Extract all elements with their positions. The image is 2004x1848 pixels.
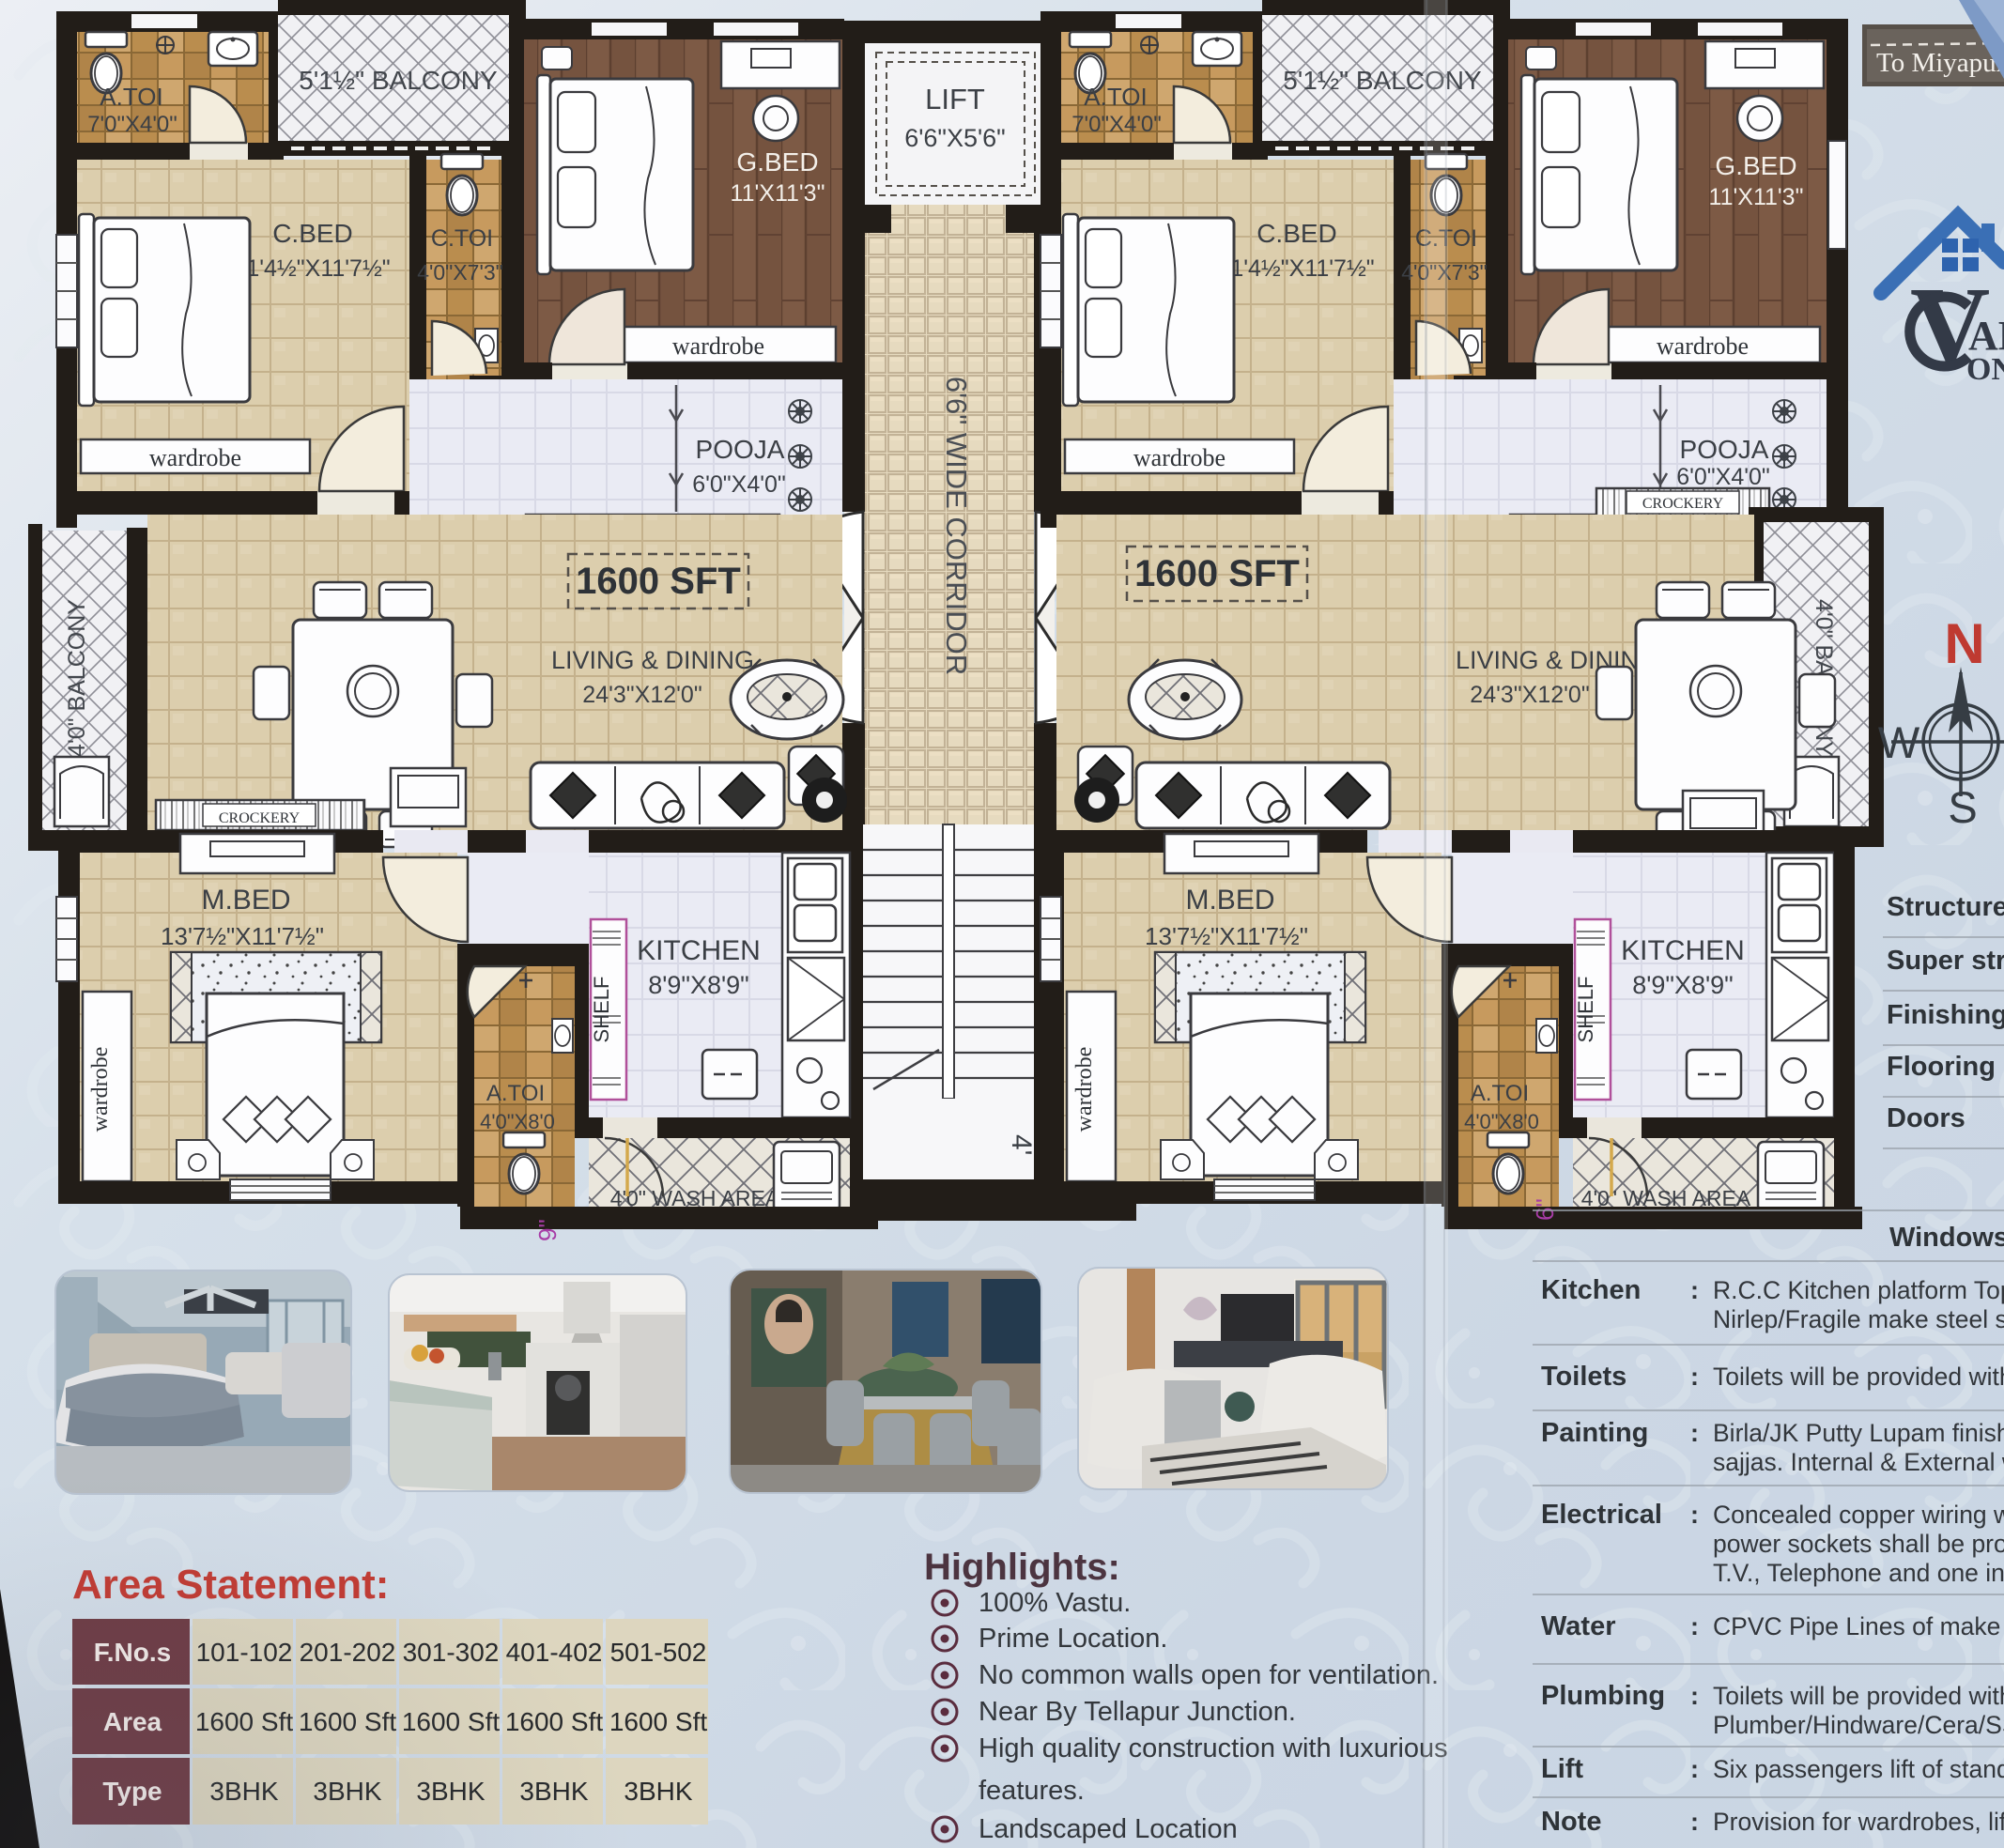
svg-text:CROCKERY: CROCKERY xyxy=(1642,496,1724,512)
svg-text:wardrobe: wardrobe xyxy=(1657,332,1749,360)
svg-text:Birla/JK Putty Lupam finishing: Birla/JK Putty Lupam finishing in dra xyxy=(1713,1419,2004,1447)
svg-text:4'0"X7'3": 4'0"X7'3" xyxy=(417,260,503,285)
svg-text:1600 SFT: 1600 SFT xyxy=(576,561,741,602)
svg-text:Electrical: Electrical xyxy=(1541,1500,1662,1530)
svg-text:SHELF: SHELF xyxy=(590,977,613,1043)
svg-text:SHELF: SHELF xyxy=(1574,977,1597,1043)
svg-text:features.: features. xyxy=(979,1776,1085,1806)
svg-text:11'4½"X11'7½": 11'4½"X11'7½" xyxy=(1219,255,1374,282)
svg-text:POOJA: POOJA xyxy=(696,435,785,464)
svg-text::: : xyxy=(1690,1419,1699,1447)
svg-text:C.BED: C.BED xyxy=(272,219,353,248)
svg-text:A.TOI: A.TOI xyxy=(100,83,162,111)
svg-text:Kitchen: Kitchen xyxy=(1541,1275,1641,1305)
svg-text:4'0"X8'0: 4'0"X8'0 xyxy=(1464,1110,1539,1133)
svg-text::: : xyxy=(1690,1276,1699,1304)
svg-text::: : xyxy=(1690,1755,1699,1783)
svg-text:A.TOI: A.TOI xyxy=(1084,83,1147,111)
svg-text:Highlights:: Highlights: xyxy=(924,1547,1120,1588)
svg-text:Near By Tellapur Junction.: Near By Tellapur Junction. xyxy=(979,1697,1296,1727)
svg-text:Toilets will be provided w: Toilets will be provided with E xyxy=(1713,1682,2004,1710)
svg-text:LIFT: LIFT xyxy=(925,83,985,115)
svg-text:N: N xyxy=(1944,612,1984,675)
svg-text:4'0"X8'0: 4'0"X8'0 xyxy=(480,1110,555,1133)
svg-text:Plumbing: Plumbing xyxy=(1541,1681,1665,1711)
svg-text:Doors: Doors xyxy=(1887,1103,1965,1133)
svg-text:Six passengers lift of standar: Six passengers lift of standard make xyxy=(1713,1755,2004,1783)
svg-text:wardrobe: wardrobe xyxy=(88,1047,113,1132)
svg-text:G.BED: G.BED xyxy=(1715,151,1796,180)
svg-text:Toilets will be provided with: Toilets will be provided with I.W.C/E. xyxy=(1713,1363,2004,1391)
svg-text:Concealed copper wiring with q: Concealed copper wiring with qualit xyxy=(1713,1501,2004,1529)
svg-text:11'X11'3": 11'X11'3" xyxy=(1709,184,1804,210)
svg-text:High quality construction with: High quality construction with luxurious xyxy=(979,1733,1448,1763)
svg-text:Structure: Structure xyxy=(1887,892,2004,922)
svg-text:Water: Water xyxy=(1541,1611,1616,1641)
svg-text:Toilets: Toilets xyxy=(1541,1362,1626,1392)
svg-text:Note: Note xyxy=(1541,1807,1601,1837)
svg-text:A.TOI: A.TOI xyxy=(486,1081,545,1106)
svg-text:6'6" WIDE CORRIDOR: 6'6" WIDE CORRIDOR xyxy=(940,377,973,675)
svg-text:11'X11'3": 11'X11'3" xyxy=(731,180,825,207)
svg-text:100% Vastu.: 100% Vastu. xyxy=(979,1588,1131,1618)
svg-text:Provision for wardrobes, lift,: Provision for wardrobes, lift, car pa xyxy=(1713,1808,2004,1836)
svg-text:LIVING & DINING: LIVING & DINING xyxy=(551,646,754,674)
svg-text:7'0"X4'0": 7'0"X4'0" xyxy=(1071,112,1162,137)
svg-text:8'9"X8'9": 8'9"X8'9" xyxy=(648,971,749,999)
svg-text:Windows :: Windows : xyxy=(1889,1223,2004,1253)
svg-text:C.BED: C.BED xyxy=(1256,219,1337,248)
svg-text:power sockets shall be provide: power sockets shall be provided in ki xyxy=(1713,1530,2004,1558)
svg-text:wardrobe: wardrobe xyxy=(672,332,764,360)
svg-text:T.V., Telephone and one intern: T.V., Telephone and one internet cab xyxy=(1713,1559,2004,1587)
svg-text:13'7½"X11'7½": 13'7½"X11'7½" xyxy=(161,922,324,950)
svg-text:Super structure: Super structure xyxy=(1887,946,2004,976)
svg-text:ONS: ONS xyxy=(1966,352,2004,387)
svg-text:5'1½" BALCONY: 5'1½" BALCONY xyxy=(299,66,498,95)
svg-text:5'1½" BALCONY: 5'1½" BALCONY xyxy=(1283,66,1482,95)
svg-text::: : xyxy=(1690,1363,1699,1391)
svg-text:KITCHEN: KITCHEN xyxy=(1621,935,1745,966)
svg-text:CPVC Pipe Lines of make Astra/: CPVC Pipe Lines of make Astra/Aash xyxy=(1713,1612,2004,1640)
svg-text:wardrobe: wardrobe xyxy=(1133,444,1226,471)
svg-text:24'3"X12'0": 24'3"X12'0" xyxy=(582,682,701,708)
svg-text:24'3"X12'0": 24'3"X12'0" xyxy=(1470,682,1589,708)
svg-text:Nirlep/Fragile make steel sink: Nirlep/Fragile make steel sink or its e xyxy=(1713,1305,2004,1333)
svg-text:13'7½"X11'7½": 13'7½"X11'7½" xyxy=(1145,922,1308,950)
svg-text:No common walls open for venti: No common walls open for ventilation. xyxy=(979,1660,1439,1690)
svg-text:6'6"X5'6": 6'6"X5'6" xyxy=(904,124,1006,152)
svg-text:Finishing: Finishing xyxy=(1887,1000,2004,1030)
svg-text:Prime Location.: Prime Location. xyxy=(979,1624,1168,1654)
svg-text:KITCHEN: KITCHEN xyxy=(637,935,761,966)
svg-text:G.BED: G.BED xyxy=(736,147,818,177)
svg-text:11'4½"X11'7½": 11'4½"X11'7½" xyxy=(235,255,390,282)
svg-text:A.TOI: A.TOI xyxy=(1471,1081,1529,1106)
svg-text:R.C.C Kitchen platform Topp: R.C.C Kitchen platform Topped wit xyxy=(1713,1276,2004,1304)
svg-text:6'0"X4'0": 6'0"X4'0" xyxy=(1676,464,1770,490)
svg-text:CROCKERY: CROCKERY xyxy=(219,810,301,826)
svg-text:6": 6" xyxy=(1531,1198,1559,1221)
svg-text:C.TOI: C.TOI xyxy=(431,225,493,252)
svg-text:Painting: Painting xyxy=(1541,1418,1648,1448)
svg-text:6'0"X4'0": 6'0"X4'0" xyxy=(692,471,786,498)
svg-text:M.BED: M.BED xyxy=(1185,885,1274,916)
svg-text:wardrobe: wardrobe xyxy=(149,444,241,471)
svg-text:wardrobe: wardrobe xyxy=(1072,1047,1097,1132)
svg-text:8'9"X8'9": 8'9"X8'9" xyxy=(1632,971,1734,999)
svg-text:Plumber/Hindware/Cera/SSS or i: Plumber/Hindware/Cera/SSS or its e xyxy=(1713,1711,2004,1739)
svg-text::: : xyxy=(1690,1682,1699,1710)
svg-text:7'0"X4'0": 7'0"X4'0" xyxy=(87,112,177,137)
svg-text:Lift: Lift xyxy=(1541,1754,1583,1784)
svg-text:To Miyapur: To Miyapur xyxy=(1876,48,2004,78)
svg-text:4'0" BALCONY: 4'0" BALCONY xyxy=(64,599,90,757)
svg-text:sajjas. Internal & External wa: sajjas. Internal & External walls with xyxy=(1713,1448,2004,1476)
svg-text:POOJA: POOJA xyxy=(1680,435,1769,464)
svg-text:Flooring: Flooring xyxy=(1887,1052,1996,1082)
svg-text:W: W xyxy=(1878,717,1920,767)
svg-text::: : xyxy=(1690,1501,1699,1529)
svg-text:S: S xyxy=(1948,782,1977,832)
svg-text:M.BED: M.BED xyxy=(201,885,290,916)
svg-text:1600 SFT: 1600 SFT xyxy=(1134,553,1300,594)
svg-text::: : xyxy=(1690,1612,1699,1640)
svg-text:4': 4' xyxy=(1006,1134,1037,1155)
svg-text::: : xyxy=(1690,1808,1699,1836)
svg-text:Landscaped Location: Landscaped Location xyxy=(979,1814,1238,1844)
